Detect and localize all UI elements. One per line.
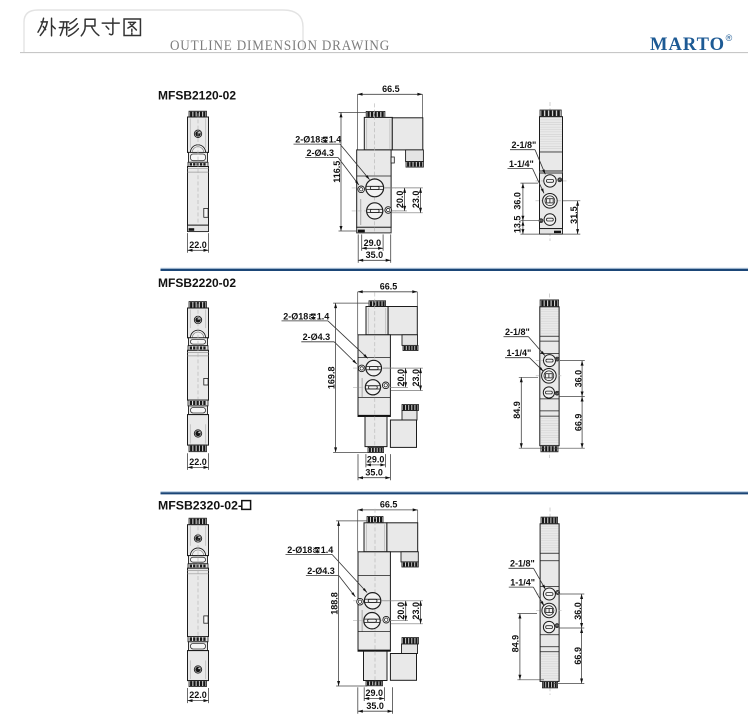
svg-text:2-Ø4.3: 2-Ø4.3 (307, 566, 335, 576)
svg-text:84.9: 84.9 (512, 401, 522, 419)
svg-text:66.5: 66.5 (382, 84, 400, 94)
svg-text:66.5: 66.5 (380, 500, 398, 510)
svg-text:35.0: 35.0 (366, 250, 384, 260)
svg-text:35.0: 35.0 (366, 701, 384, 711)
svg-text:66.9: 66.9 (573, 414, 583, 432)
svg-text:36.0: 36.0 (512, 192, 522, 210)
svg-text:66.9: 66.9 (573, 647, 583, 665)
svg-text:66.5: 66.5 (380, 282, 398, 292)
svg-text:23.0: 23.0 (411, 602, 421, 620)
svg-text:22.0: 22.0 (189, 690, 207, 700)
svg-text:23.0: 23.0 (411, 191, 421, 209)
svg-text:MFSB2220-02: MFSB2220-02 (158, 276, 236, 290)
svg-text:MFSB2120-02: MFSB2120-02 (158, 89, 236, 103)
svg-text:20.0: 20.0 (395, 191, 405, 209)
svg-text:OUTLINE DIMENSION DRAWING: OUTLINE DIMENSION DRAWING (170, 38, 390, 54)
svg-text:31.5: 31.5 (569, 206, 579, 224)
svg-text:1-1/4": 1-1/4" (510, 577, 535, 587)
svg-text:2-Ø4.3: 2-Ø4.3 (303, 332, 331, 342)
svg-text:29.0: 29.0 (367, 455, 385, 465)
svg-text:29.0: 29.0 (366, 688, 384, 698)
svg-text:1-1/4": 1-1/4" (509, 159, 534, 169)
svg-text:188.8: 188.8 (329, 592, 339, 615)
svg-text:35.0: 35.0 (365, 467, 383, 477)
svg-text:2-1/8": 2-1/8" (512, 140, 537, 150)
svg-text:1-1/4": 1-1/4" (507, 348, 532, 358)
svg-text:22.0: 22.0 (189, 240, 207, 250)
svg-text:20.0: 20.0 (396, 369, 406, 387)
svg-text:MARTO: MARTO (650, 34, 725, 55)
svg-text:29.0: 29.0 (364, 238, 382, 248)
svg-text:20.0: 20.0 (396, 602, 406, 620)
svg-text:2-Ø18: 2-Ø18 (287, 545, 312, 555)
svg-text:1.4: 1.4 (329, 135, 342, 145)
svg-text:2-Ø4.3: 2-Ø4.3 (307, 148, 335, 158)
svg-text:2-1/8": 2-1/8" (510, 559, 535, 569)
svg-text:36.0: 36.0 (573, 370, 583, 388)
svg-text:2-1/8": 2-1/8" (505, 327, 530, 337)
svg-text:13.5: 13.5 (512, 216, 522, 234)
svg-text:2-Ø18: 2-Ø18 (295, 135, 320, 145)
svg-text:MFSB2320-02-: MFSB2320-02- (158, 499, 242, 513)
svg-text:2-Ø18: 2-Ø18 (283, 311, 308, 321)
svg-text:116.5: 116.5 (332, 161, 342, 183)
svg-text:1.4: 1.4 (321, 545, 334, 555)
svg-text:36.0: 36.0 (573, 602, 583, 620)
svg-text:84.9: 84.9 (511, 635, 521, 653)
svg-text:1.4: 1.4 (317, 311, 330, 321)
svg-text:22.0: 22.0 (189, 457, 207, 467)
svg-text:®: ® (726, 33, 733, 43)
svg-text:169.8: 169.8 (326, 367, 336, 390)
svg-text:23.0: 23.0 (411, 369, 421, 387)
